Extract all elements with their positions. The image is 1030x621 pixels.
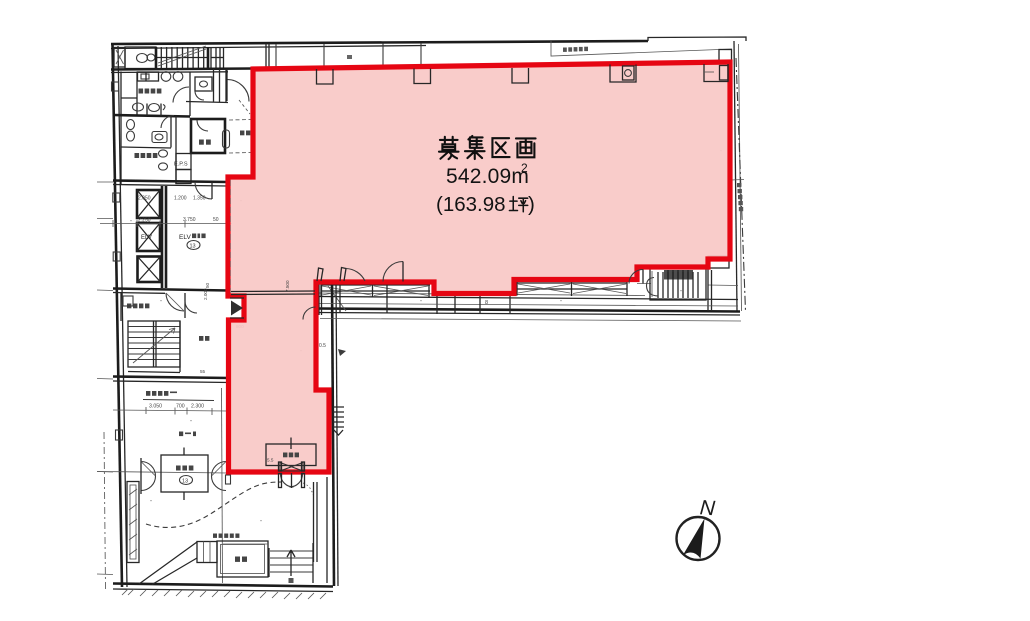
svg-text:ELV: ELV	[179, 234, 191, 241]
svg-text:8: 8	[485, 300, 488, 306]
svg-text:542.09m: 542.09m	[446, 165, 529, 188]
svg-text:2.000: 2.000	[203, 288, 208, 300]
svg-text:7.500: 7.500	[285, 280, 290, 292]
svg-text:50: 50	[213, 217, 219, 223]
svg-text:50: 50	[205, 282, 210, 288]
svg-text:2: 2	[521, 161, 528, 175]
svg-text:2.050: 2.050	[138, 196, 151, 202]
svg-text:700: 700	[176, 404, 185, 410]
svg-text:E.P.S: E.P.S	[174, 162, 188, 168]
svg-text:2.300: 2.300	[191, 404, 204, 410]
svg-text:1.200: 1.200	[174, 196, 187, 202]
svg-text:55: 55	[200, 369, 206, 374]
svg-text:2.250: 2.250	[138, 218, 151, 224]
svg-text:13: 13	[190, 244, 196, 250]
svg-text:(163.98: (163.98	[436, 193, 506, 216]
svg-text:): )	[528, 193, 535, 216]
svg-text:13: 13	[182, 479, 188, 485]
svg-text:ELV: ELV	[141, 235, 152, 241]
svg-text:N: N	[699, 496, 717, 520]
svg-text:0.5: 0.5	[319, 343, 326, 349]
svg-text:5.5: 5.5	[267, 458, 274, 463]
svg-text:3.050: 3.050	[149, 404, 162, 410]
